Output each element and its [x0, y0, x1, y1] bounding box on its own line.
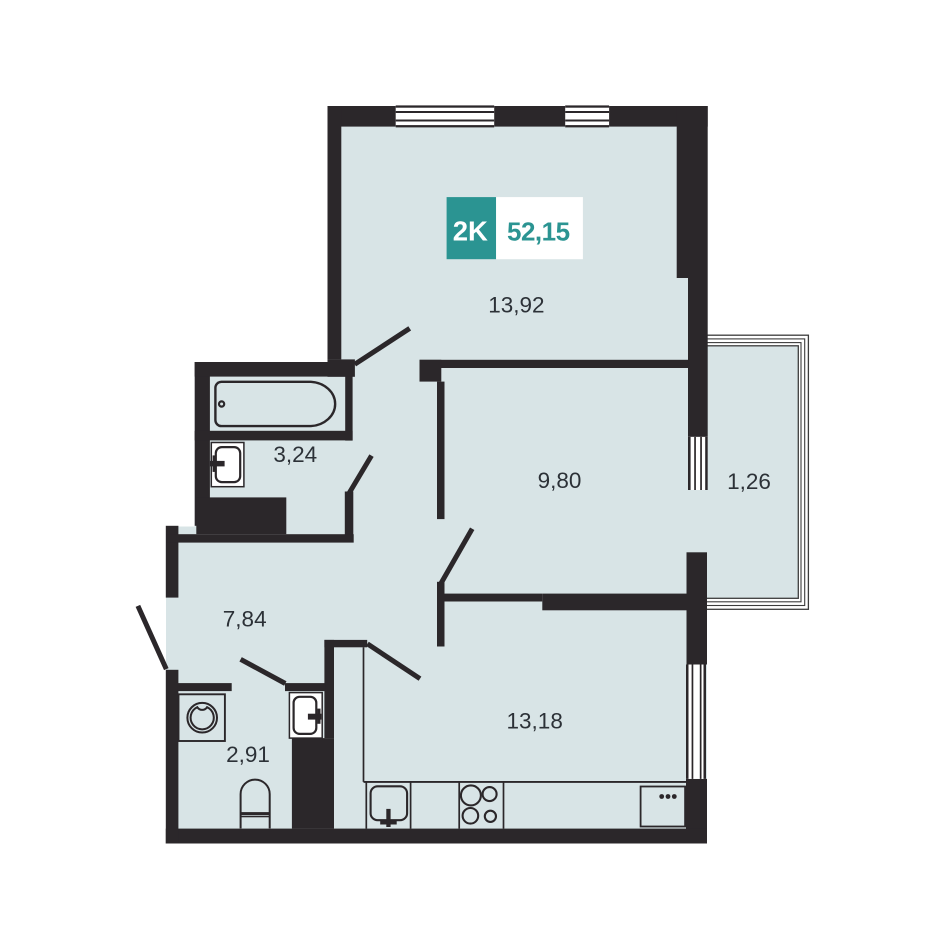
svg-text:7,84: 7,84: [223, 607, 267, 632]
svg-text:9,80: 9,80: [538, 468, 582, 493]
svg-text:13,92: 13,92: [488, 293, 544, 318]
svg-text:1,26: 1,26: [727, 469, 771, 494]
svg-text:2,91: 2,91: [226, 742, 270, 767]
svg-text:13,18: 13,18: [507, 708, 563, 733]
svg-text:3,24: 3,24: [273, 442, 317, 467]
svg-text:52,15: 52,15: [507, 217, 570, 247]
svg-text:2K: 2K: [453, 215, 488, 246]
